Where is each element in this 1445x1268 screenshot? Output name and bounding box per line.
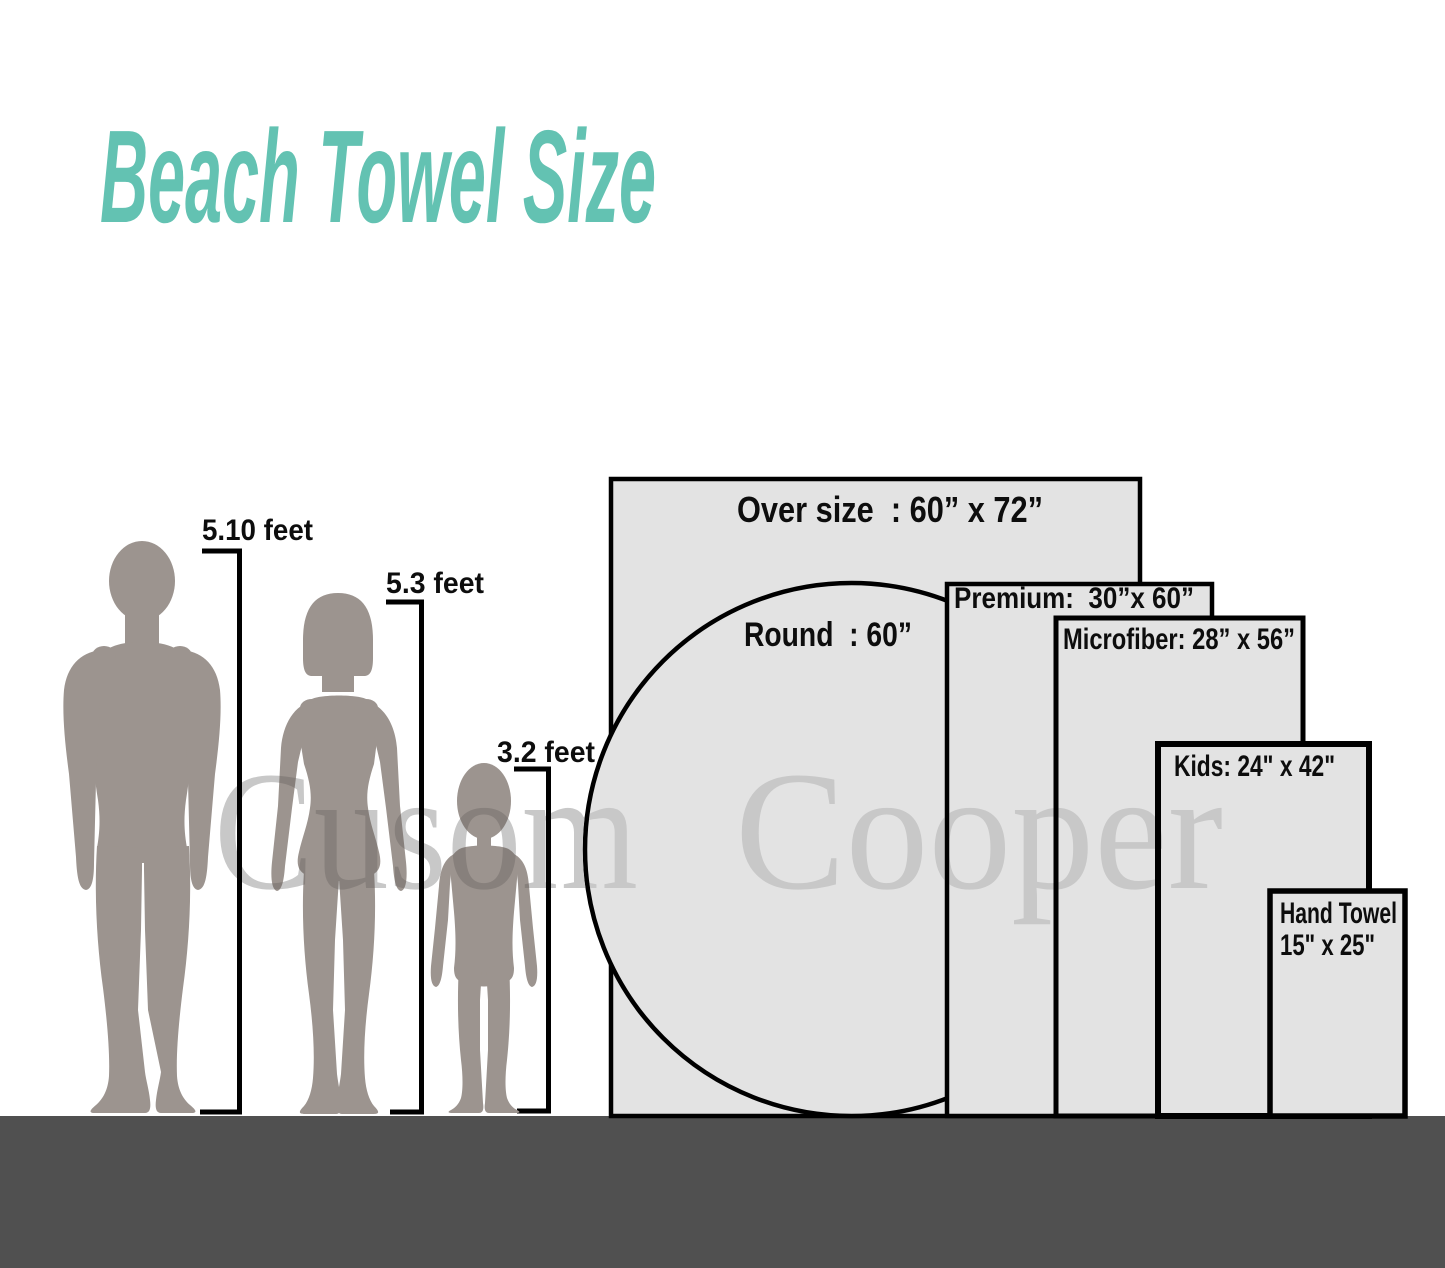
svg-text:Over size : 60” x 72”: Over size : 60” x 72” [737, 489, 1043, 530]
svg-text:15" x 25": 15" x 25" [1280, 929, 1375, 962]
svg-text:5.3 feet: 5.3 feet [386, 567, 484, 600]
svg-text:Kids: 24" x 42": Kids: 24" x 42" [1174, 750, 1335, 783]
svg-text:5.10 feet: 5.10 feet [202, 514, 313, 547]
svg-text:Premium: 30”x 60”: Premium: 30”x 60” [954, 582, 1194, 615]
svg-text:3.2 feet: 3.2 feet [497, 736, 595, 769]
svg-text:Beach Towel Size: Beach Towel Size [100, 103, 656, 250]
svg-text:Round : 60”: Round : 60” [744, 616, 912, 654]
svg-text:Microfiber: 28” x 56”: Microfiber: 28” x 56” [1063, 623, 1295, 656]
svg-text:Hand Towel: Hand Towel [1280, 897, 1397, 930]
svg-text:Cooper: Cooper [735, 737, 1223, 925]
